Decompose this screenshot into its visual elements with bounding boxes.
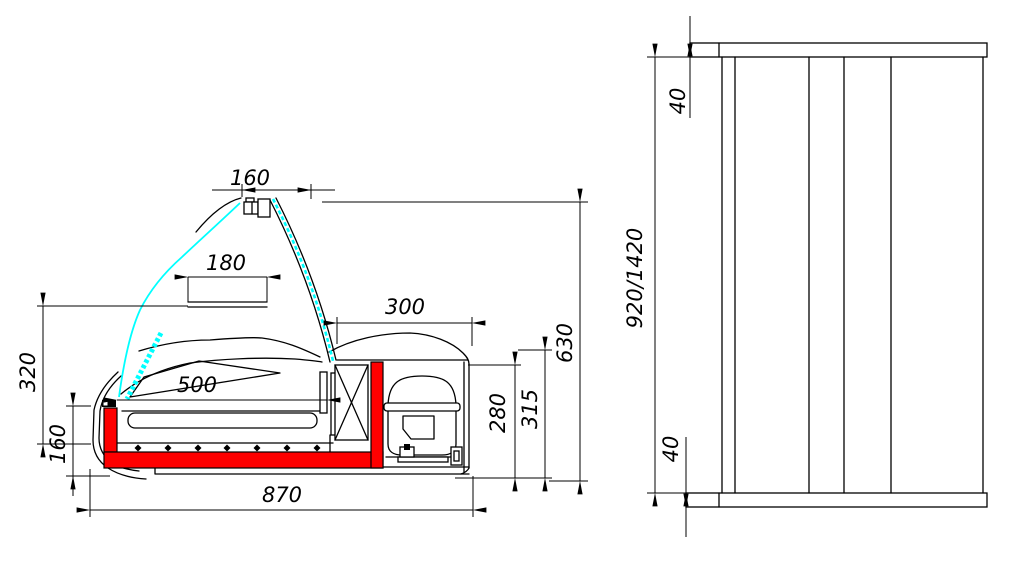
dim-label-280: 280 [486, 393, 510, 433]
compressor [384, 376, 462, 465]
glass [119, 198, 336, 399]
leg-panels [722, 57, 983, 493]
dim-base-height: 160 [46, 406, 110, 496]
compressor-label-plate [403, 416, 434, 439]
dim-label-920-1420: 920/1420 [623, 228, 647, 329]
drawing-canvas: 160 180 320 [0, 0, 1015, 567]
dim-label-160-top: 160 [230, 166, 270, 190]
dim-length-options: 920/1420 [623, 57, 690, 493]
technical-drawing: 160 180 320 [0, 0, 1015, 567]
dim-label-160-left: 160 [46, 424, 70, 464]
dim-label-630: 630 [553, 323, 577, 363]
vent-dots [135, 445, 321, 452]
lamp-holder [258, 199, 270, 217]
dim-label-320: 320 [16, 352, 40, 392]
curved-canopy-glass [119, 203, 240, 397]
dim-label-500: 500 [177, 373, 217, 397]
dim-label-180: 180 [206, 251, 246, 275]
dim-label-870: 870 [262, 483, 302, 507]
front-view: 920/1420 40 40 [623, 16, 987, 537]
dim-body-height: 315 [518, 350, 552, 478]
interior-structure [117, 333, 469, 452]
display-tray [128, 413, 317, 428]
dim-canopy-box: 180 [188, 251, 267, 307]
lamp [244, 198, 270, 217]
dim-overall-depth: 870 [90, 469, 473, 517]
dim-top-panel: 40 [666, 16, 690, 118]
front-body [686, 43, 987, 507]
dim-label-300: 300 [385, 295, 425, 319]
top-panel [690, 43, 987, 57]
dim-label-40-top: 40 [666, 88, 690, 115]
dim-label-315: 315 [518, 389, 542, 429]
dim-machine-width: 300 [337, 295, 472, 346]
compressor-skid [398, 457, 448, 462]
front-view-dimensions: 920/1420 40 40 [623, 16, 690, 537]
rear-glass [127, 333, 161, 399]
dim-label-40-bottom: 40 [659, 436, 683, 463]
dim-bottom-panel: 40 [659, 436, 686, 537]
dim-lamp-width: 160 [212, 166, 335, 199]
evaporator [335, 365, 368, 440]
side-section-view: 160 180 320 [16, 166, 588, 517]
bottom-panel [686, 493, 987, 507]
